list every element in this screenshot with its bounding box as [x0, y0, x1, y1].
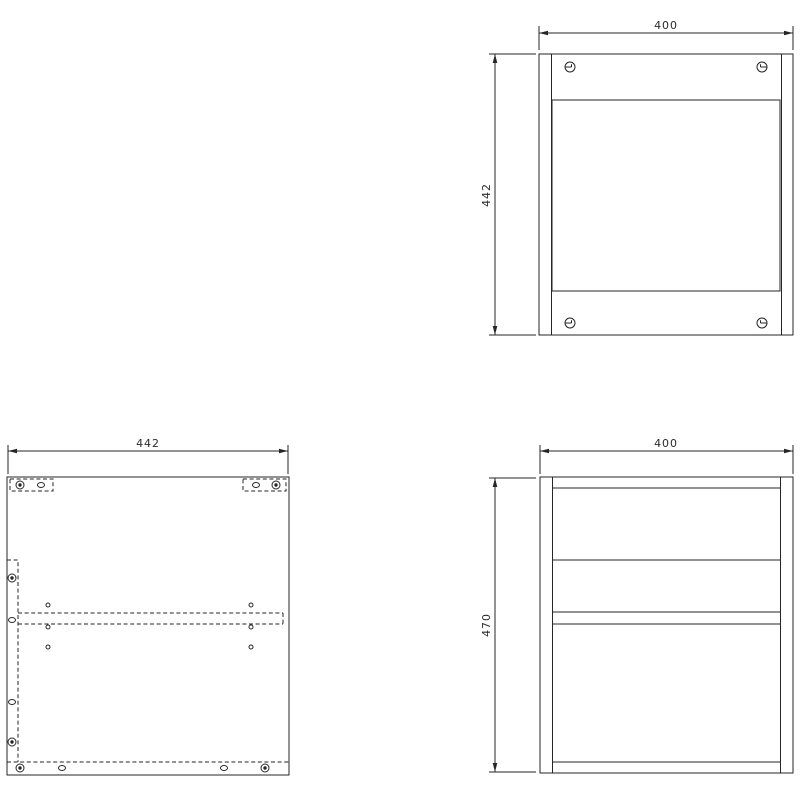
arrowhead-icon: [279, 449, 288, 454]
front-view: 400 442: [480, 19, 793, 335]
dowel-hole-icon: [9, 618, 16, 623]
cam-fitting-icon: [16, 481, 24, 489]
arrowhead-icon: [493, 54, 498, 63]
pilot-hole-icon: [249, 625, 253, 629]
pilot-hole-icon: [249, 603, 253, 607]
cam-fitting-icon: [261, 764, 269, 772]
dimension-label: 400: [654, 19, 678, 32]
dowel-hole-icon: [9, 700, 16, 705]
cam-fitting-icon: [16, 764, 24, 772]
cam-fitting-icon: [8, 574, 16, 582]
cam-screw-icon: [565, 62, 575, 72]
pilot-hole-icon: [46, 603, 50, 607]
side-view-outline: [540, 477, 793, 773]
dowel-hole-icon: [253, 483, 260, 488]
arrowhead-icon: [539, 31, 548, 36]
dowel-hole-icon: [59, 766, 66, 771]
pilot-hole-icon: [46, 625, 50, 629]
plan-width-dimension: 442: [8, 437, 288, 474]
cam-screw-icon: [757, 62, 767, 72]
front-width-dimension: 400: [539, 19, 793, 50]
side-view: 400 470: [480, 437, 793, 773]
arrowhead-icon: [540, 449, 549, 454]
technical-drawing-canvas: 400 442: [0, 0, 800, 800]
front-back-panel-opening: [552, 100, 780, 291]
front-view-outline: [539, 54, 793, 335]
cam-fitting-icon: [272, 481, 280, 489]
plan-view: 442: [7, 437, 289, 775]
arrowhead-icon: [784, 449, 793, 454]
hidden-upright-outline: [7, 560, 18, 762]
arrowhead-icon: [784, 31, 793, 36]
arrowhead-icon: [493, 326, 498, 335]
hidden-shelf-outline: [18, 613, 283, 624]
front-height-dimension: 442: [480, 54, 536, 335]
dowel-hole-icon: [221, 766, 228, 771]
dimension-label: 442: [136, 437, 160, 450]
side-height-dimension: 470: [480, 478, 536, 772]
dimension-label: 442: [480, 183, 493, 207]
dimension-label: 470: [480, 613, 493, 637]
arrowhead-icon: [493, 763, 498, 772]
arrowhead-icon: [8, 449, 17, 454]
cam-fitting-icon: [8, 738, 16, 746]
dowel-hole-icon: [38, 483, 45, 488]
cam-screw-icon: [565, 318, 575, 328]
drawing-svg: 400 442: [0, 0, 800, 800]
dimension-label: 400: [654, 437, 678, 450]
pilot-hole-icon: [46, 645, 50, 649]
pilot-hole-icon: [249, 645, 253, 649]
cam-screw-icon: [757, 318, 767, 328]
arrowhead-icon: [493, 478, 498, 487]
side-width-dimension: 400: [540, 437, 793, 474]
